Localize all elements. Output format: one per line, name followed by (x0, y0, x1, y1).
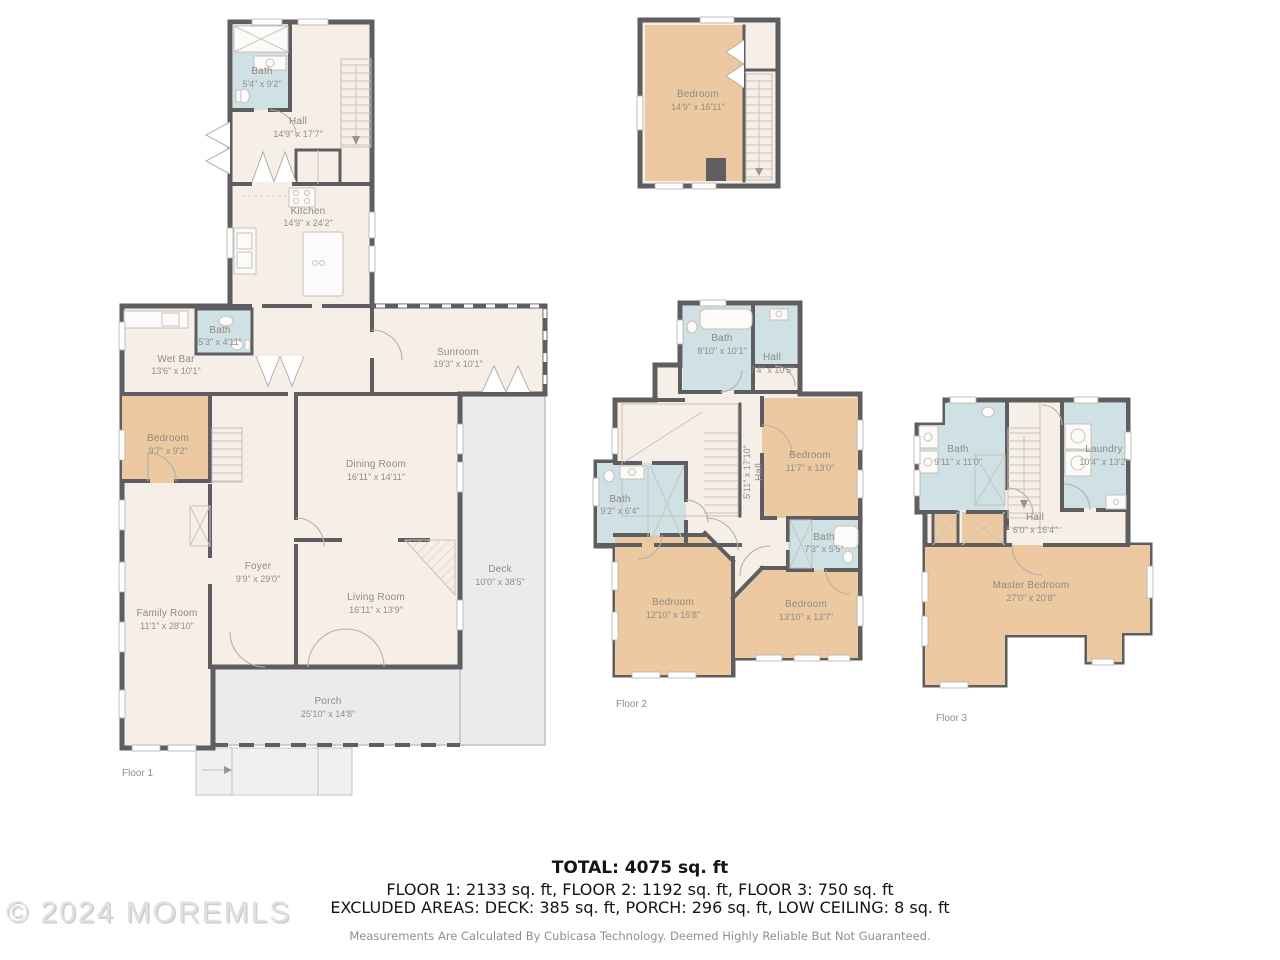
room-label-bath-top: Bath (711, 333, 732, 344)
room-dims-sunroom: 19'3" x 10'1" (433, 359, 482, 369)
room-dims-bath-left: 9'2" x 6'4" (600, 506, 639, 516)
room-dims-living: 16'11" x 13'9" (349, 605, 403, 615)
room-label-sunroom: Sunroom (437, 347, 479, 358)
room-label-hall-f1: Hall (289, 116, 307, 127)
floor1-plan: Bath 5'4" x 9'2" Hall 14'9" x 17'7" Kitc… (119, 19, 545, 795)
toilet-icon (604, 470, 614, 482)
room-dims-bedroom-br: 13'10" x 13'7" (779, 612, 833, 622)
floor-plan-canvas: Bath 5'4" x 9'2" Hall 14'9" x 17'7" Kitc… (0, 0, 1280, 960)
room-label-porch: Porch (314, 696, 341, 707)
room-label-hall-f3: Hall (1026, 512, 1044, 523)
room-label-hall-top: Hall (763, 352, 781, 363)
wetbar-counter (124, 311, 188, 328)
floor2-top-unit: Bedroom 14'9" x 16'11" (637, 17, 778, 189)
total-area-text: TOTAL: 4075 sq. ft (0, 858, 1280, 878)
room-dims-family: 11'1" x 28'10" (140, 621, 194, 631)
floor-plan-drawing: Bath 5'4" x 9'2" Hall 14'9" x 17'7" Kitc… (0, 0, 1280, 960)
staircase-f3 (1008, 428, 1040, 518)
room-label-bath-mid: Bath (209, 325, 230, 336)
room-label-bedroom-right: Bedroom (789, 450, 831, 461)
room-dims-deck: 10'0" x 38'5" (475, 577, 524, 587)
room-dims-hall-f1: 14'9" x 17'7" (273, 129, 322, 139)
room-label-family: Family Room (136, 608, 197, 619)
room-label-bath-left: Bath (609, 494, 630, 505)
staircase-f1-mid (212, 428, 242, 482)
laundry-counter (1106, 495, 1126, 509)
floor2-plan: Bedroom 14'9" x 16'11" (593, 17, 863, 710)
room-label-bedroom-br: Bedroom (785, 599, 827, 610)
room-label-kitchen: Kitchen (291, 206, 326, 217)
staircase-f1-upper (341, 59, 371, 147)
porch-steps (196, 748, 352, 795)
floor1-label: Floor 1 (122, 768, 154, 779)
chimney (706, 158, 726, 181)
room-dims-bath-small: 7'3" x 5'5" (804, 544, 843, 554)
room-dims-hall-mid: 5'11" x 17'10" (742, 445, 752, 499)
toilet-icon (982, 407, 994, 417)
room-dims-porch: 25'10" x 14'8" (301, 709, 355, 719)
room-dims-bath-top: 8'10" x 10'1" (697, 346, 746, 356)
room-dims-bedroom-right: 11'7" x 13'0" (786, 463, 835, 473)
room-dims-bedroom-top: 14'9" x 16'11" (671, 102, 725, 112)
room-label-wetbar: Wet Bar (157, 354, 195, 365)
room-label-dining: Dining Room (346, 459, 406, 470)
room-dims-kitchen: 14'9" x 24'2" (283, 218, 332, 228)
room-dims-dining: 16'11" x 14'11" (347, 472, 405, 482)
mls-watermark: © 2024 MOREMLS (6, 896, 291, 930)
room-label-master: Master Bedroom (993, 580, 1070, 591)
room-label-bath-f3: Bath (947, 444, 968, 455)
room-label-hall-mid: Hall (754, 463, 765, 481)
floor3-plan: Bath 9'11" x 11'0" Laundry 10'4" x 13'2"… (914, 397, 1153, 724)
floor3-label: Floor 3 (936, 713, 968, 724)
room-label-bedroom-top: Bedroom (677, 89, 719, 100)
room-label-deck: Deck (488, 564, 512, 575)
room-label-foyer: Foyer (245, 561, 272, 572)
tub-icon (700, 309, 752, 329)
sink-icon (687, 321, 697, 333)
stove-icon (289, 188, 315, 207)
room-label-bedroom-bl: Bedroom (652, 597, 694, 608)
disclaimer-text: Measurements Are Calculated By Cubicasa … (0, 929, 1280, 943)
staircase-f2-top (746, 74, 772, 180)
room-dims-laundry: 10'4" x 13'2" (1079, 457, 1128, 467)
wetbar-fixtures (124, 311, 188, 328)
room-dims-bath-mid: 5'3" x 4'11" (198, 337, 242, 347)
toilet-icon (843, 551, 853, 563)
room-dims-hall-f3: 6'0" x 16'4" (1013, 525, 1057, 535)
room-dims-bath-f3: 9'11" x 11'0" (934, 457, 982, 467)
room-dims-foyer: 9'9" x 29'0" (236, 574, 280, 584)
kitchen-island (303, 232, 343, 296)
room-dims-bedroom-bl: 12'10" x 15'8" (646, 610, 700, 620)
room-dims-wetbar: 13'6" x 10'1" (151, 366, 200, 376)
room-dims-master: 27'0" x 20'8" (1006, 593, 1055, 603)
room-label-bath-small: Bath (813, 532, 834, 543)
room-dims-hall-top: 7'4" x 10'5" (750, 365, 794, 375)
room-label-bedroom-f1: Bedroom (147, 433, 189, 444)
room-label-living: Living Room (347, 592, 405, 603)
floor2-label: Floor 2 (616, 699, 648, 710)
room-dims-bedroom-f1: 9'7" x 9'2" (148, 446, 187, 456)
room-dims-bath-upper: 5'4" x 9'2" (242, 79, 281, 89)
room-label-bath-upper: Bath (251, 66, 272, 77)
room-label-laundry: Laundry (1085, 444, 1123, 455)
